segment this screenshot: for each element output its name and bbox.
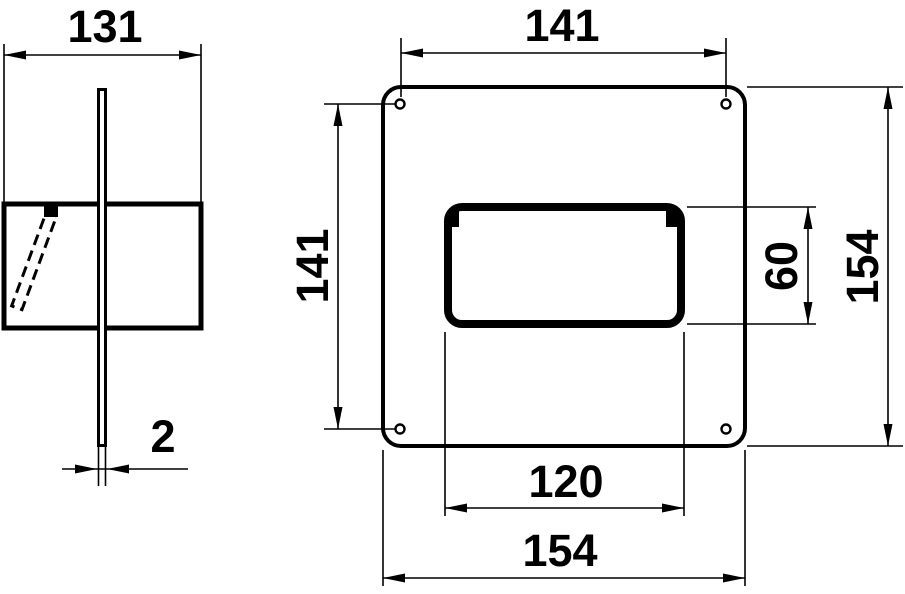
arrowhead-right xyxy=(662,504,684,513)
mounting-hole-top-left xyxy=(396,100,405,109)
flap-tab-right xyxy=(666,211,677,227)
dimension-label-154-bottom: 154 xyxy=(522,525,597,576)
arrowhead-bottom xyxy=(334,407,343,429)
backdraft-flap-dashed xyxy=(12,212,57,310)
dimension-label-141-top: 141 xyxy=(524,0,599,51)
arrowhead-right xyxy=(179,51,201,60)
arrowhead-bottom xyxy=(804,302,813,324)
dimension-label-131: 131 xyxy=(67,1,142,52)
dimension-hole-spacing-vertical: 141 xyxy=(287,104,395,429)
dimension-opening-height: 60 xyxy=(687,207,816,324)
arrowhead-top xyxy=(884,87,893,109)
mounting-hole-bottom-left xyxy=(396,425,405,434)
arrowhead-left xyxy=(401,49,423,58)
arrowhead-top xyxy=(804,207,813,229)
dimension-plate-thickness: 2 xyxy=(62,411,188,486)
wall-plate-edge xyxy=(99,90,106,446)
arrowhead-bottom xyxy=(884,424,893,446)
dimension-hole-spacing-horizontal: 141 xyxy=(401,0,726,97)
side-view: 131 2 xyxy=(4,1,201,486)
dimension-label-141-left: 141 xyxy=(287,228,338,303)
mounting-hole-bottom-right xyxy=(722,425,731,434)
dimension-opening-width: 120 xyxy=(445,332,684,516)
backdraft-flap-group xyxy=(12,212,57,310)
arrowhead-left xyxy=(383,574,405,583)
technical-drawing-canvas: 131 2 141 xyxy=(0,0,905,594)
dimension-label-154-right: 154 xyxy=(837,229,888,304)
arrowhead-right xyxy=(704,49,726,58)
dimension-label-2: 2 xyxy=(150,411,175,462)
arrowhead-right xyxy=(723,574,745,583)
arrowhead-left xyxy=(75,465,97,474)
dimension-label-120: 120 xyxy=(528,456,603,507)
arrowhead-right xyxy=(107,465,129,474)
arrowhead-left xyxy=(4,51,26,60)
arrowhead-left xyxy=(445,504,467,513)
duct-opening-outline xyxy=(448,207,681,324)
front-view: 141 141 60 154 xyxy=(287,0,903,586)
plate-outline xyxy=(383,87,745,446)
arrowhead-top xyxy=(334,104,343,126)
dimension-label-60: 60 xyxy=(756,241,807,291)
mounting-hole-top-right xyxy=(722,100,731,109)
dimension-drawing: 131 2 141 xyxy=(0,0,905,594)
flap-tab-left xyxy=(448,211,459,227)
flap-hinge-pivot xyxy=(44,203,58,217)
